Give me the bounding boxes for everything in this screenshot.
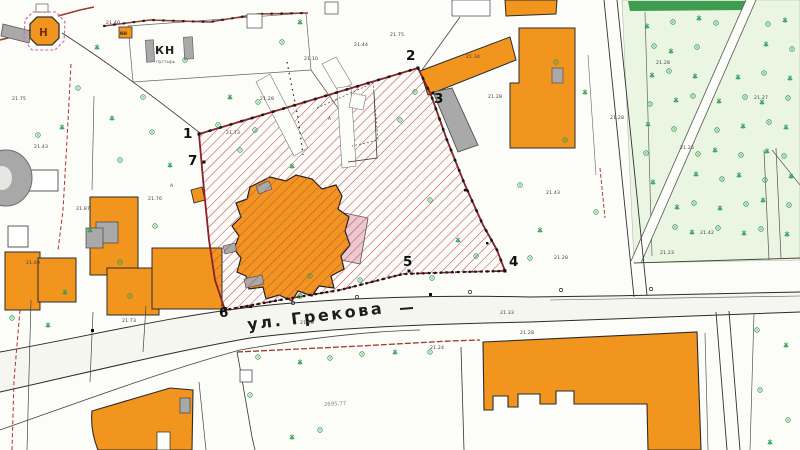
cadastral-map: ул. Грекова 1 2 3 4 5 6 7 Н КН пустырь К… [0, 0, 800, 450]
elevation-label: 21.28 [610, 115, 624, 121]
cadastral-map-screen: ул. Грекова 1 2 3 4 5 6 7 Н КН пустырь К… [0, 0, 800, 450]
elevation-label: 21.69 [26, 260, 40, 266]
elevation-label: 21.28 [520, 330, 534, 336]
boundary-point-label-7: 7 [188, 153, 197, 169]
elevation-label: 21.27 [754, 95, 768, 101]
building [505, 0, 557, 16]
elevation-label: 21.87 [76, 206, 90, 212]
elevation-label: 21.28 [656, 60, 670, 66]
park-hedge-strip [628, 1, 748, 11]
elevation-label: 21.43 [34, 144, 48, 150]
park-area [622, 0, 800, 302]
elevation-label: 21.34 [466, 54, 480, 60]
elevation-label: 21.75 [12, 96, 26, 102]
kn-small-label: КН [120, 31, 127, 36]
area-label: 2695,77 [324, 401, 347, 408]
elevation-label: 21.23 [660, 250, 674, 256]
elevation-label: 21.28 [488, 94, 502, 100]
boundary-point-label-6: 6 [219, 305, 228, 321]
boundary-point-label-2: 2 [406, 48, 415, 64]
elevation-label: 21.28 [260, 96, 274, 102]
elevation-label: 21.43 [546, 190, 560, 196]
building [510, 28, 575, 148]
building [107, 268, 159, 315]
small-building [191, 187, 205, 203]
elevation-label: 21.25 [680, 145, 694, 151]
landmark-letter: Н [39, 27, 48, 39]
building [38, 258, 76, 302]
elevation-label: 21.33 [500, 310, 514, 316]
elevation-label: 21.44 [354, 42, 368, 48]
elevation-label: 21.75 [390, 32, 404, 38]
elevation-label: 21.73 [226, 130, 240, 136]
elevation-label: 21.24 [430, 345, 444, 351]
boundary-point-label-1: 1 [183, 126, 192, 142]
elevation-label: 21.42 [700, 230, 714, 236]
boundary-point-label-3: 3 [434, 91, 443, 107]
kn-sublabel: пустырь [156, 60, 176, 65]
elevation-label: 21.76 [148, 196, 162, 202]
boundary-point-label-4: 4 [509, 254, 518, 270]
boundary-point-label-5: 5 [403, 254, 412, 270]
elevation-label: 21.40 [106, 20, 120, 26]
elevation-label: 21.10 [304, 56, 318, 62]
elevation-label: 21.28 [300, 320, 314, 326]
elevation-label: 21.28 [554, 255, 568, 261]
elevation-label: 21.73 [122, 318, 136, 324]
kn-label: КН [155, 44, 175, 57]
